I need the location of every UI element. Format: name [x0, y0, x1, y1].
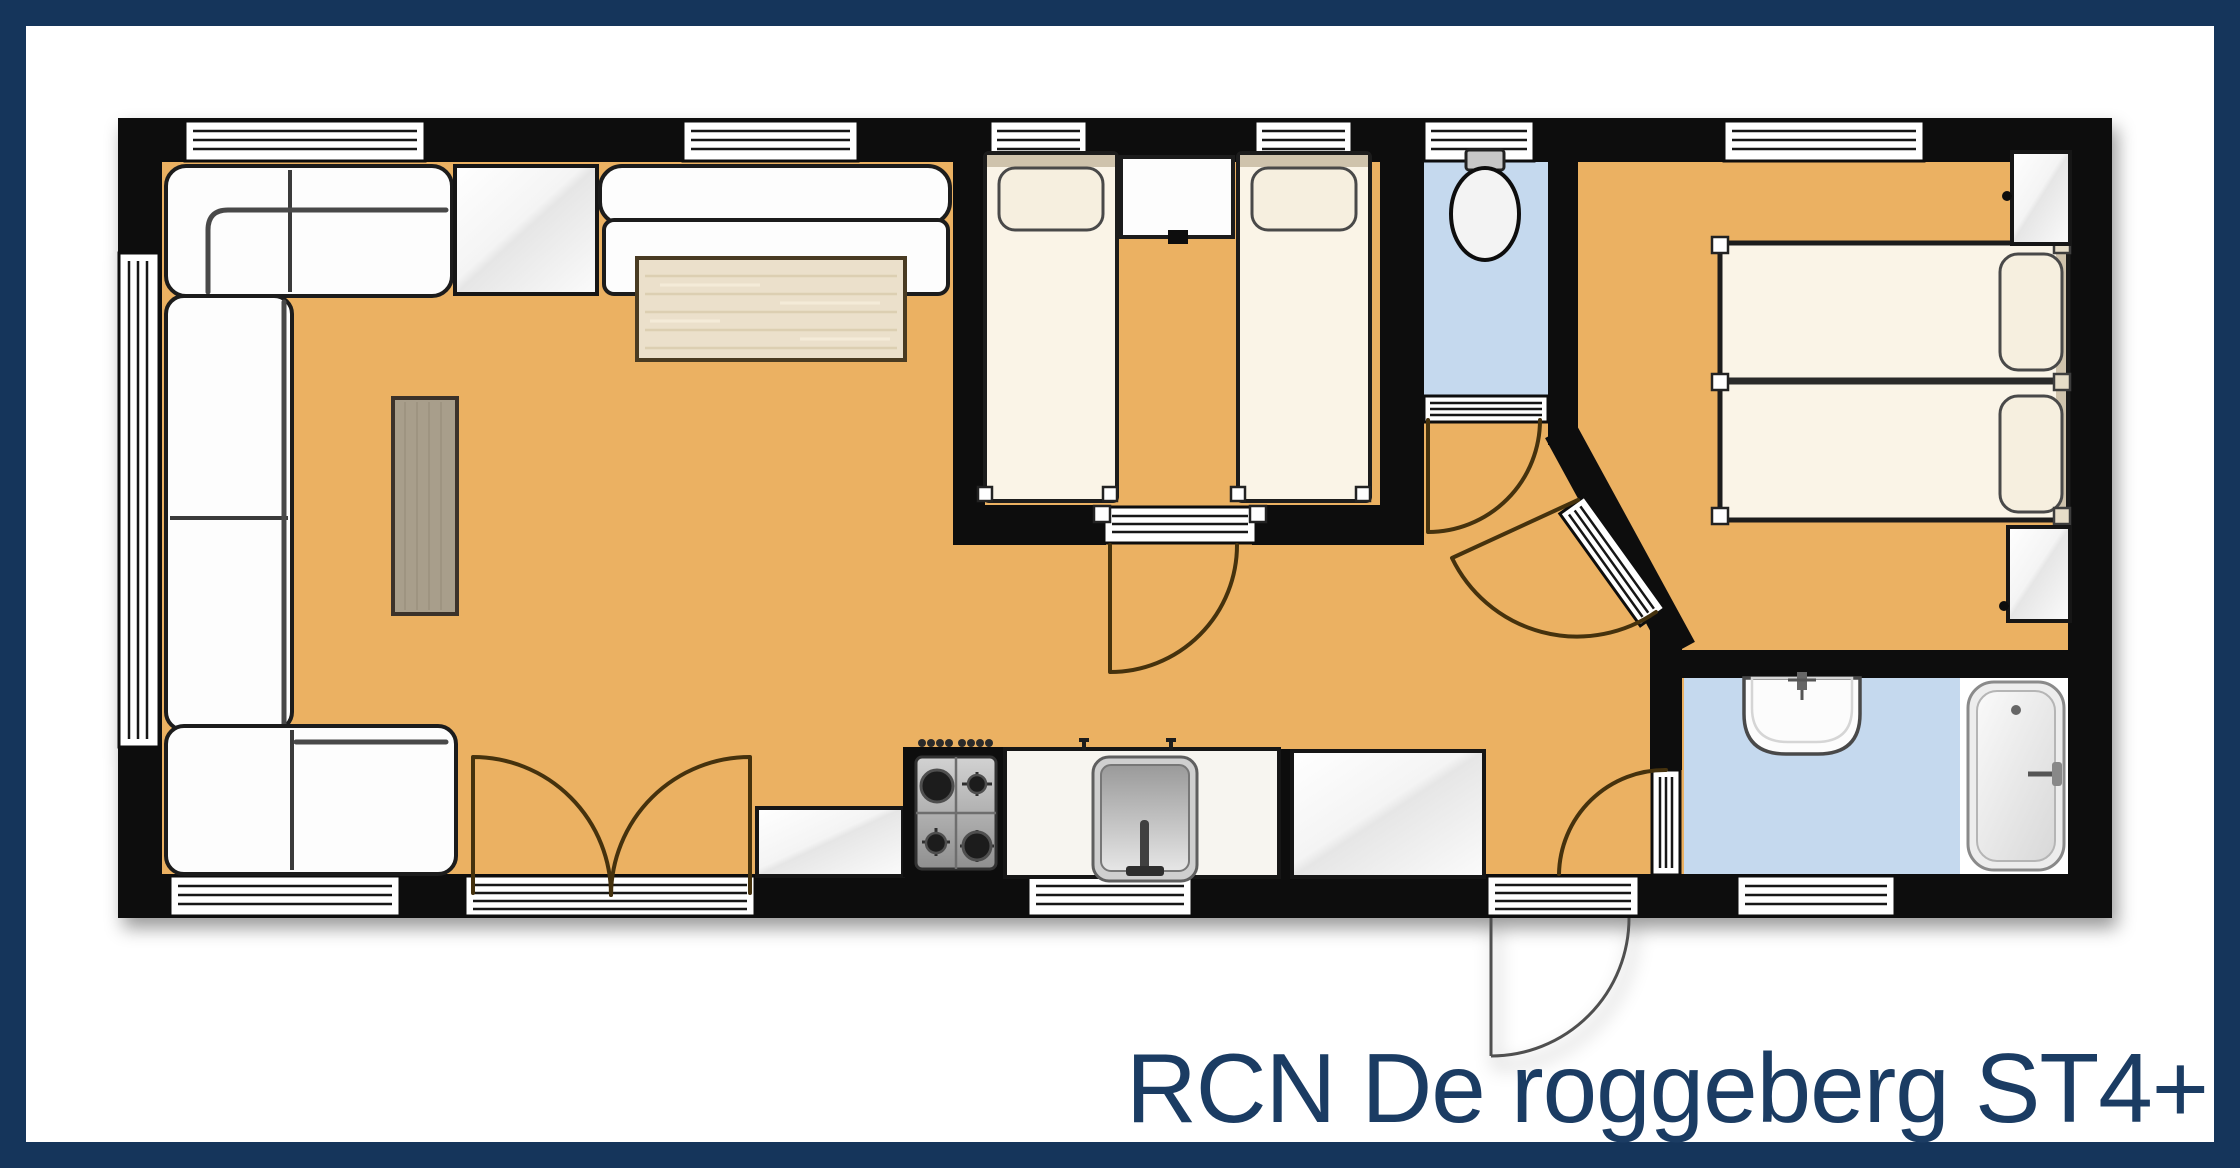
window-top-livingroom-left — [185, 121, 425, 161]
dining-table — [637, 258, 905, 360]
nightstand-handle — [1168, 230, 1188, 244]
sink-faucet-base — [1126, 866, 1164, 876]
hallway-counter — [1292, 751, 1484, 877]
sofa-bottom-run — [166, 726, 456, 874]
bathtub — [1968, 682, 2064, 870]
pillow — [999, 168, 1103, 230]
floorplan-canvas: RCN De roggeberg ST4+ — [0, 0, 2240, 1168]
gas-stove — [916, 739, 996, 869]
toilet-bowl — [1451, 168, 1519, 260]
wall-bedroom2-bottom-right — [1252, 505, 1424, 545]
pillow — [1252, 168, 1356, 230]
plan-title: RCN De roggeberg ST4+ — [1126, 1033, 2208, 1143]
window-top-bedroom1 — [1724, 121, 1924, 161]
tv-cabinet — [455, 166, 597, 294]
window-bottom-livingroom — [170, 876, 400, 916]
bedroom2-bed-right — [1231, 153, 1370, 501]
threshold-entry-door — [1487, 876, 1639, 916]
bed-head-rail — [987, 155, 1115, 167]
wall-bedroom2-bottom-left — [953, 505, 1106, 545]
door-stop-dot — [1999, 601, 2009, 611]
window-bottom-bathroom — [1737, 876, 1895, 916]
bedroom2-bed-left — [978, 153, 1117, 501]
threshold-bedroom2-door — [1094, 506, 1266, 543]
window-top-livingroom-right — [683, 121, 858, 161]
door-leaf-bathroom — [1652, 770, 1680, 875]
coffee-table — [393, 398, 457, 614]
bedroom1-wardrobe-top — [2012, 152, 2070, 244]
wall-bathroom-top — [1650, 650, 2070, 678]
kitchen-cabinet-left — [757, 808, 903, 876]
wall-bedroom2-toilet-shared — [1380, 162, 1424, 505]
door-stop-dot — [2002, 191, 2012, 201]
bed-head-rail — [1240, 155, 1368, 167]
bathtub-tap-icon — [2052, 762, 2062, 786]
pillow — [2000, 396, 2062, 512]
burner-icon — [921, 770, 953, 802]
wall-exterior-right — [2068, 118, 2112, 918]
bedroom1-double-beds — [1712, 237, 2070, 524]
burner-icon — [926, 833, 946, 853]
bench-backrest — [600, 166, 950, 224]
pillow — [2000, 254, 2062, 370]
burner-icon — [968, 775, 986, 793]
bedroom2-nightstand — [1121, 157, 1233, 237]
threshold-toilet-door — [1424, 396, 1548, 422]
floorplan — [118, 118, 2112, 1056]
burner-icon — [963, 832, 991, 860]
bathroom-sink — [1744, 672, 1860, 754]
floorplan-page: RCN De roggeberg ST4+ — [0, 0, 2240, 1168]
bedroom1-wardrobe-bottom — [2008, 527, 2070, 621]
window-left-livingroom — [119, 253, 159, 747]
kitchen-sink — [1093, 757, 1197, 881]
wall-toilet-right — [1548, 162, 1578, 445]
sofa-left-run — [166, 296, 292, 730]
bathtub-drain-icon — [2011, 705, 2021, 715]
